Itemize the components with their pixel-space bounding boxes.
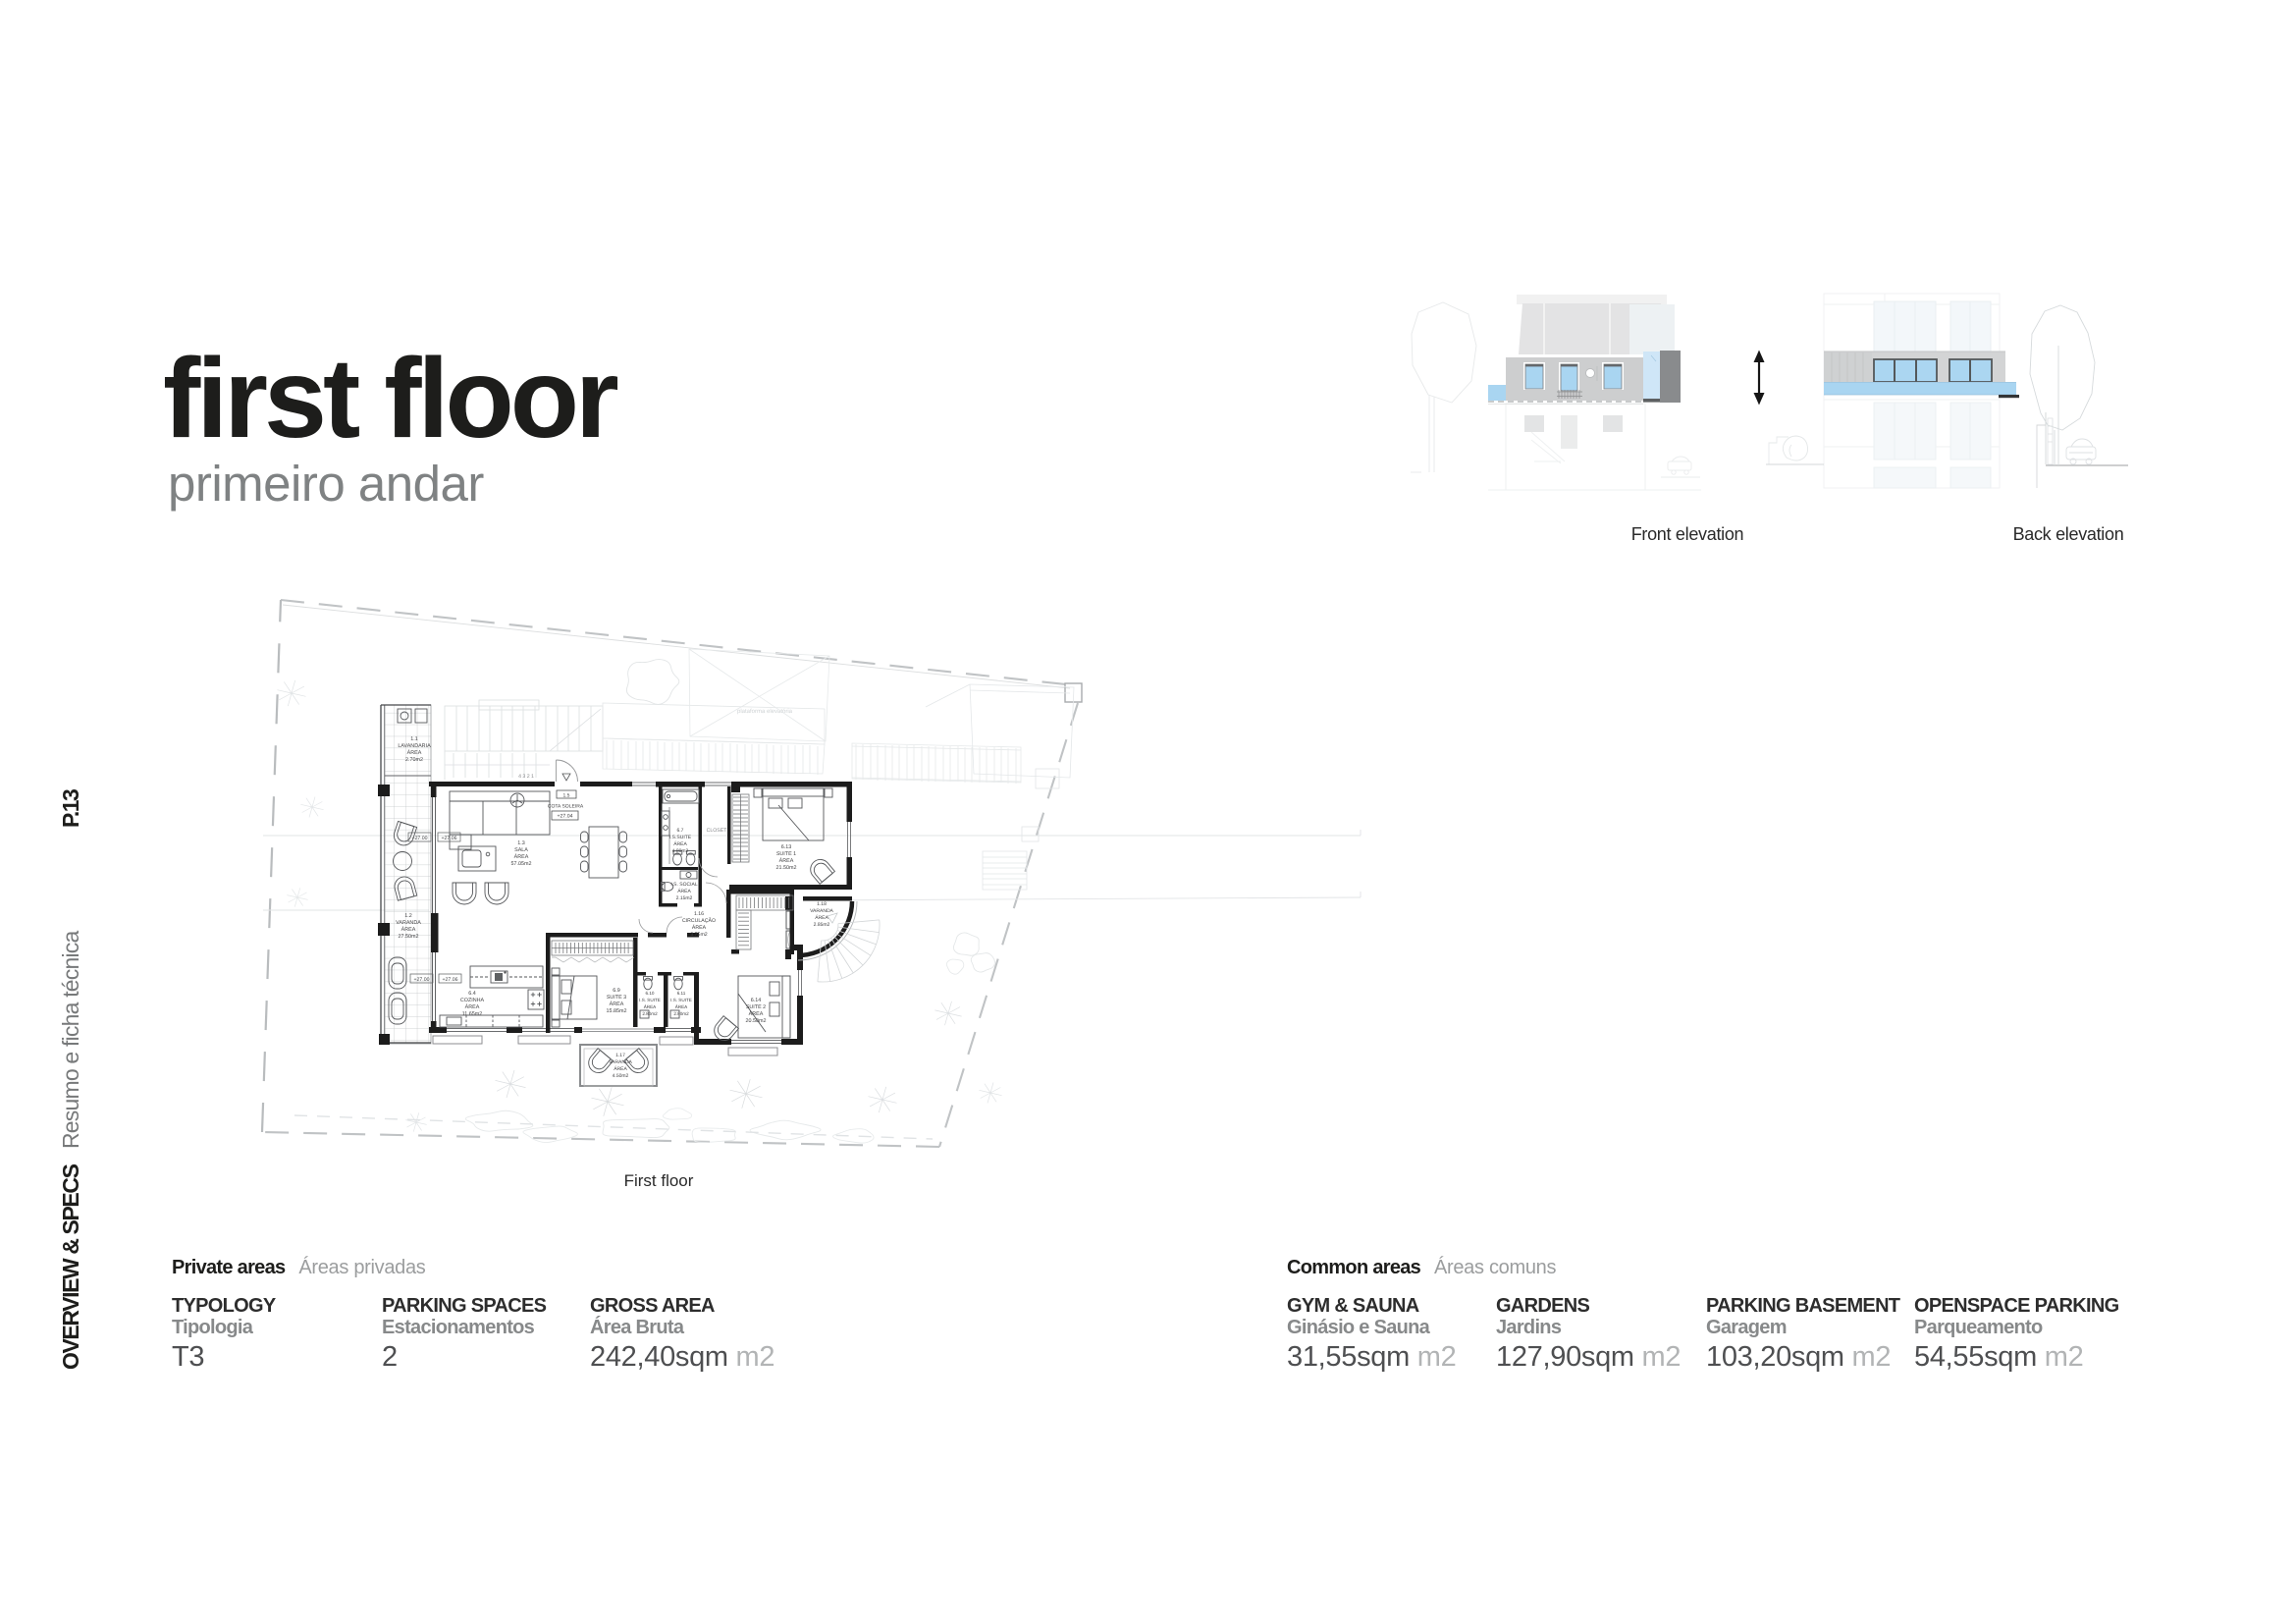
svg-text:I.S. SOCIALÁREA2.15m2: I.S. SOCIALÁREA2.15m2 <box>670 882 697 901</box>
svg-text:+27.00: +27.00 <box>413 977 429 983</box>
svg-text:6.7I.S.SUITEÁREA4.80m2: 6.7I.S.SUITEÁREA4.80m2 <box>669 828 692 854</box>
svg-text:1.3SALAÁREA57.05m2: 1.3SALAÁREA57.05m2 <box>511 840 532 867</box>
svg-text:6.10I.S. SUITEÁREA2.80m2: 6.10I.S. SUITEÁREA2.80m2 <box>639 991 661 1016</box>
svg-text:4 3 2 1: 4 3 2 1 <box>518 774 534 780</box>
svg-text:6.9SUITE 3ÁREA15.85m2: 6.9SUITE 3ÁREA15.85m2 <box>607 988 627 1014</box>
svg-text:+27.06: +27.06 <box>442 977 457 983</box>
svg-text:6.11I.S. SUITEÁREA2.80m2: 6.11I.S. SUITEÁREA2.80m2 <box>670 991 692 1016</box>
svg-text:COTA SOLEIRA: COTA SOLEIRA <box>548 804 584 810</box>
svg-text:6.14SUITE 2ÁREA20.50m2: 6.14SUITE 2ÁREA20.50m2 <box>746 998 767 1024</box>
svg-text:6.13SUITE 1ÁREA21.50m2: 6.13SUITE 1ÁREA21.50m2 <box>776 844 797 871</box>
svg-text:6.4COZINHAÁREA11.65m2: 6.4COZINHAÁREA11.65m2 <box>460 991 485 1017</box>
svg-text:+27.06: +27.06 <box>441 836 456 841</box>
svg-text:+27.04: +27.04 <box>557 814 572 820</box>
svg-text:CLOSET: CLOSET <box>707 828 728 834</box>
svg-text:1.18VARANDAÁREA2.85m2: 1.18VARANDAÁREA2.85m2 <box>810 901 833 928</box>
svg-text:+27.00: +27.00 <box>411 836 427 841</box>
svg-text:1.5: 1.5 <box>563 793 570 799</box>
